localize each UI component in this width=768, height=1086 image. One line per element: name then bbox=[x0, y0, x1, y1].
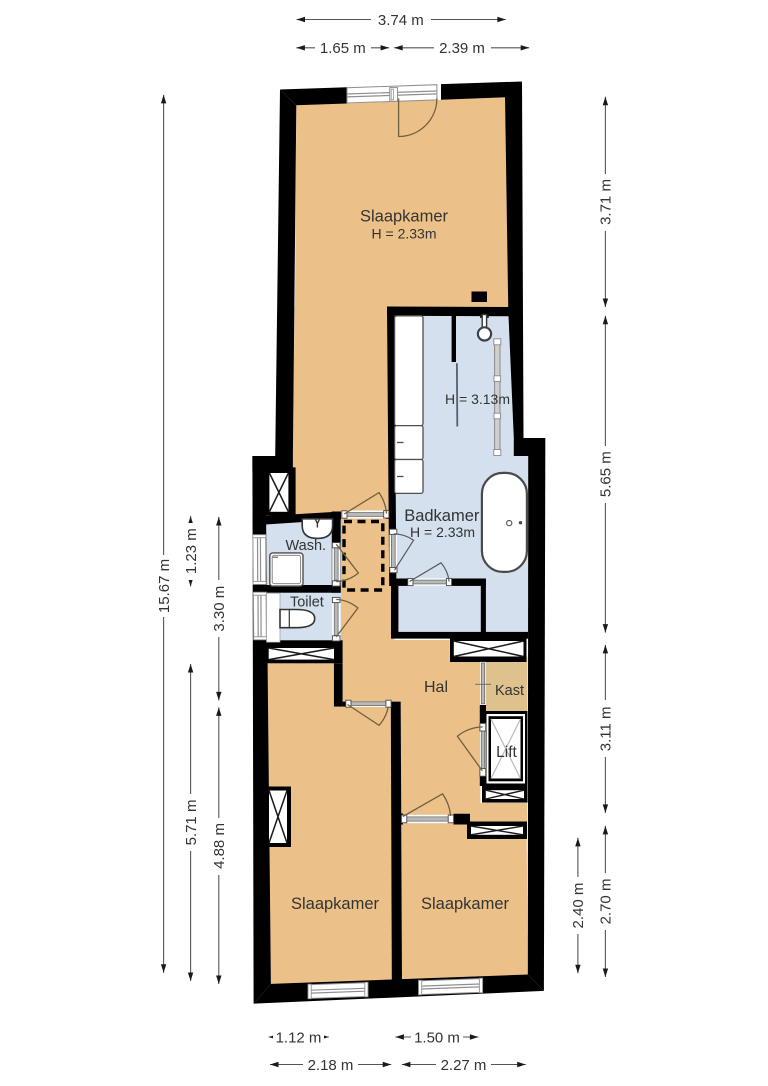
svg-text:1.12 m: 1.12 m bbox=[276, 1029, 322, 1046]
svg-text:Slaapkamer: Slaapkamer bbox=[291, 895, 380, 913]
svg-text:Kast: Kast bbox=[495, 683, 524, 699]
svg-text:3.71 m: 3.71 m bbox=[598, 179, 615, 225]
svg-text:15.67 m: 15.67 m bbox=[156, 559, 173, 613]
svg-text:4.88 m: 4.88 m bbox=[211, 823, 228, 869]
svg-text:Lift: Lift bbox=[496, 744, 517, 761]
svg-text:1.50 m: 1.50 m bbox=[414, 1029, 460, 1046]
svg-text:Badkamer: Badkamer bbox=[404, 507, 480, 525]
svg-text:H = 3.13m: H = 3.13m bbox=[445, 391, 510, 407]
svg-text:2.40 m: 2.40 m bbox=[570, 883, 587, 929]
svg-text:2.39 m: 2.39 m bbox=[439, 40, 485, 57]
svg-text:Slaapkamer: Slaapkamer bbox=[360, 208, 449, 226]
svg-text:2.27 m: 2.27 m bbox=[441, 1057, 487, 1074]
svg-text:5.65 m: 5.65 m bbox=[598, 451, 615, 497]
svg-text:Toilet: Toilet bbox=[290, 595, 324, 611]
svg-text:Slaapkamer: Slaapkamer bbox=[421, 895, 510, 913]
svg-text:2.18 m: 2.18 m bbox=[308, 1057, 354, 1074]
svg-text:H = 2.33m: H = 2.33m bbox=[372, 226, 437, 242]
svg-text:3.11 m: 3.11 m bbox=[598, 707, 615, 752]
svg-text:1.23 m: 1.23 m bbox=[183, 528, 200, 574]
svg-text:H = 2.33m: H = 2.33m bbox=[410, 524, 475, 540]
svg-text:5.71 m: 5.71 m bbox=[183, 800, 200, 846]
svg-text:Hal: Hal bbox=[424, 679, 448, 696]
svg-text:Wash.: Wash. bbox=[286, 538, 327, 554]
svg-text:2.70 m: 2.70 m bbox=[598, 879, 615, 925]
svg-text:1.65 m: 1.65 m bbox=[320, 40, 366, 57]
svg-text:3.30 m: 3.30 m bbox=[211, 586, 228, 632]
svg-text:3.74 m: 3.74 m bbox=[378, 12, 424, 29]
